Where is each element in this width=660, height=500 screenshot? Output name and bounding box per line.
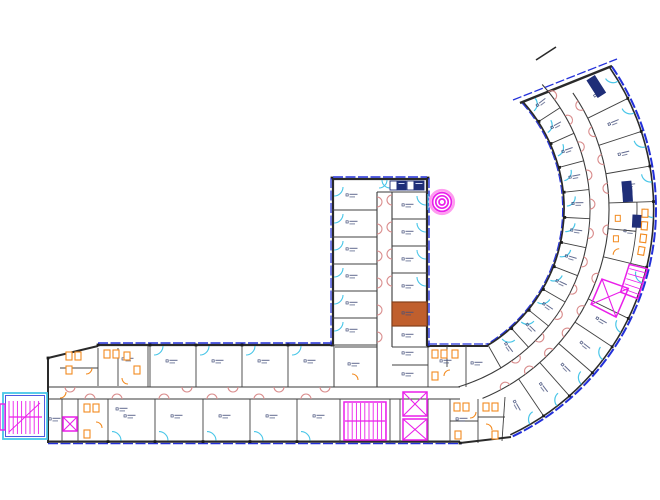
room-label-mark: [350, 223, 356, 224]
room-partition: [553, 266, 577, 275]
door-arc-corridor: [377, 305, 382, 315]
tip-tick: [536, 47, 556, 60]
column-marker: [249, 440, 252, 443]
toilet-fixture: [483, 403, 489, 411]
room-label-mark: [262, 362, 268, 363]
room-partition: [559, 161, 584, 168]
room-label-mark: [612, 122, 617, 125]
floorplan-viewport: [0, 0, 660, 500]
room-label: [346, 248, 358, 252]
room-label-mark: [170, 362, 176, 363]
room-label-mark: [219, 415, 221, 417]
toilet-fixture: [66, 366, 72, 374]
room-label-mark: [350, 248, 358, 249]
toilet-fixture: [463, 403, 469, 411]
door-arc-corridor: [377, 224, 382, 234]
room-label: [402, 204, 414, 208]
room-label: [166, 360, 178, 364]
door-arc-exterior: [565, 223, 575, 233]
room-label: [402, 352, 414, 356]
room-label-mark: [621, 151, 629, 154]
room-label-mark: [402, 352, 404, 354]
room-label-mark: [266, 415, 268, 417]
room-label: [346, 329, 358, 333]
door-arc-corridor: [274, 387, 284, 392]
room-label: [402, 285, 414, 289]
closet-tag-group: [587, 76, 605, 98]
room-label-mark: [317, 415, 325, 416]
room-label-mark: [406, 206, 412, 207]
exterior-wall-outer: [510, 68, 653, 435]
closet-tag-text: [399, 183, 405, 184]
toilet-fixture: [642, 209, 648, 217]
door-arc-orange: [96, 422, 102, 428]
door-swing: [565, 223, 575, 233]
stairwell-west[interactable]: [3, 393, 47, 439]
room-label: [471, 362, 483, 366]
spiral-annotation[interactable]: [436, 196, 448, 208]
room-label-mark: [270, 415, 278, 416]
door-arc-exterior: [417, 196, 426, 205]
door-arc-exterior: [246, 346, 255, 355]
room-label: [618, 151, 630, 157]
toilet-fixture: [75, 352, 81, 360]
toilet-fixture: [492, 431, 498, 439]
door-arc-corridor: [207, 394, 217, 399]
door-arc-exterior: [334, 322, 343, 331]
room-label-mark: [212, 360, 214, 362]
toilet-fixture: [93, 404, 99, 412]
toilet-fixture: [84, 430, 90, 438]
door-arc-exterior: [112, 432, 121, 441]
room-label-mark: [350, 196, 356, 197]
door-arc-exterior: [595, 347, 608, 360]
door-arc-exterior: [502, 333, 515, 346]
room-label-mark: [406, 354, 412, 355]
column-marker: [202, 440, 205, 443]
room-label-mark: [608, 123, 611, 126]
toilet-fixture: [66, 352, 72, 360]
room-label-mark: [350, 302, 358, 303]
column-marker: [538, 120, 541, 123]
room-label: [346, 221, 358, 225]
corridor-wall: [458, 85, 590, 387]
room-label-mark: [406, 258, 414, 259]
room-label-mark: [456, 418, 458, 420]
room-partition: [609, 202, 654, 203]
room-label: [116, 408, 128, 412]
closet-tag: [587, 76, 605, 98]
room-label-mark: [406, 352, 414, 353]
room-label-mark: [175, 415, 183, 416]
room-label-mark: [406, 314, 412, 315]
door-arc-orange: [470, 412, 476, 418]
room-label-mark: [569, 256, 577, 259]
door-arc-corridor: [301, 394, 311, 399]
room-partition: [543, 289, 566, 302]
room-label-mark: [346, 275, 348, 277]
door-arc-exterior: [642, 173, 652, 183]
room-label-mark: [566, 150, 572, 153]
door-arc-exterior: [334, 295, 343, 304]
door-swing: [575, 372, 588, 385]
room-label-mark: [406, 233, 412, 234]
door-arc-corridor: [377, 197, 382, 207]
room-label-mark: [574, 232, 580, 234]
closet-tag-group: [632, 215, 641, 227]
room-label-mark: [352, 365, 358, 366]
room-label-mark: [262, 360, 270, 361]
door-arc-corridor: [387, 276, 392, 286]
door-arc-corridor: [85, 394, 95, 399]
room-label-mark: [575, 202, 583, 203]
column-marker: [154, 440, 157, 443]
room-label-mark: [598, 321, 603, 325]
toilet-fixture: [641, 222, 648, 230]
room-label-mark: [49, 418, 51, 420]
floorplan-canvas[interactable]: [0, 0, 660, 500]
door-swing: [543, 120, 555, 132]
room-label-mark: [402, 334, 404, 336]
room-partition: [511, 328, 528, 347]
room-label: [212, 360, 224, 364]
toilet-fixture: [134, 366, 140, 374]
room-label-mark: [402, 373, 404, 375]
room-label-mark: [317, 417, 323, 418]
room-label-mark: [440, 360, 442, 362]
room-label: [402, 231, 414, 235]
closet-tag-group: [623, 188, 633, 202]
room-label-mark: [350, 277, 356, 278]
room-label-mark: [568, 258, 574, 261]
room-label: [219, 415, 231, 419]
room-label: [440, 360, 452, 364]
room-label: [402, 258, 414, 262]
door-swing: [642, 173, 652, 183]
room-label-mark: [53, 418, 61, 419]
column-marker: [568, 395, 571, 398]
room-label-mark: [406, 231, 414, 232]
wall: [488, 345, 501, 368]
room-label-mark: [475, 364, 481, 365]
stair-tread: [629, 269, 645, 273]
door-arc-corridor: [387, 222, 392, 232]
room-label-mark: [350, 329, 358, 330]
room-label-mark: [346, 194, 348, 196]
door-arc-exterior: [254, 432, 263, 441]
room-label: [560, 363, 571, 374]
room-label-mark: [120, 410, 126, 411]
door-arc-exterior: [200, 346, 209, 355]
column-marker: [560, 241, 563, 244]
room-label-mark: [622, 154, 628, 156]
room-label-mark: [308, 360, 316, 361]
door-swing: [606, 74, 618, 86]
spiral-annotation-halo[interactable]: [430, 190, 454, 214]
door-arc-corridor: [377, 278, 382, 288]
door-swing: [555, 144, 567, 156]
room-label: [304, 360, 316, 364]
room-label-mark: [406, 287, 412, 288]
room-label-mark: [580, 341, 583, 344]
room-partition: [550, 133, 574, 144]
room-label-mark: [618, 153, 621, 156]
door-arc-exterior: [417, 223, 426, 232]
door-arc-exterior: [417, 250, 426, 259]
door-arc-corridor: [112, 394, 122, 399]
room-label-mark: [402, 285, 404, 287]
column-marker: [149, 344, 152, 347]
room-label-mark: [406, 260, 412, 261]
room-label-mark: [475, 362, 483, 363]
room-label-mark: [406, 204, 414, 205]
column-marker: [459, 442, 462, 445]
door-arc-exterior: [562, 170, 573, 181]
column-marker: [611, 345, 614, 348]
room-label-mark: [444, 360, 452, 361]
room-label-mark: [460, 418, 468, 419]
door-arc-corridor: [387, 195, 392, 205]
room-label-mark: [505, 342, 508, 345]
room-label: [572, 202, 584, 206]
room-label-mark: [402, 204, 404, 206]
room-label-mark: [350, 221, 358, 222]
toilet-fixture: [113, 350, 119, 358]
room-label-mark: [627, 232, 633, 234]
room-label-mark: [171, 415, 173, 417]
closet-tag: [390, 181, 397, 190]
closet-tag-text: [416, 183, 423, 184]
column-marker: [591, 371, 594, 374]
toilet-fixture: [84, 404, 90, 412]
door-arc-corridor: [182, 387, 192, 392]
door-arc-exterior: [334, 241, 343, 250]
room-label-mark: [124, 415, 126, 417]
room-label-mark: [514, 404, 518, 409]
room-label-mark: [120, 408, 128, 409]
room-label-mark: [308, 362, 314, 363]
room-partition: [606, 166, 650, 174]
door-swing: [502, 333, 515, 346]
column-marker: [563, 216, 566, 219]
room-label-mark: [402, 258, 404, 260]
room-label-mark: [346, 221, 348, 223]
door-arc-exterior: [334, 187, 343, 196]
room-partition: [603, 257, 646, 267]
column-marker: [195, 344, 198, 347]
column-marker: [563, 191, 566, 194]
spiral-annotation[interactable]: [439, 199, 445, 205]
room-label-mark: [596, 317, 599, 320]
door-arc-orange: [122, 378, 128, 384]
toilet-fixture: [104, 350, 110, 358]
room-label-mark: [554, 121, 562, 126]
room-partition: [564, 217, 590, 218]
door-arc-exterior: [207, 432, 216, 441]
room-label-mark: [216, 362, 222, 363]
room-label-mark: [444, 362, 450, 363]
column-marker: [550, 142, 553, 145]
closet-tag: [407, 181, 414, 190]
room-label-mark: [170, 360, 178, 361]
door-arc-exterior: [543, 120, 555, 132]
door-arc-corridor: [377, 251, 382, 261]
room-label-mark: [166, 360, 168, 362]
door-arc-exterior: [551, 393, 564, 406]
door-arc-exterior: [154, 346, 163, 355]
door-swing: [562, 170, 573, 181]
room-label-mark: [406, 334, 414, 335]
room-label-mark: [128, 415, 136, 416]
door-arc-corridor: [377, 332, 382, 342]
toilet-fixture: [432, 350, 438, 358]
column-marker: [97, 344, 100, 347]
room-label: [402, 373, 414, 377]
column-marker: [626, 97, 629, 100]
room-label: [402, 334, 414, 338]
door-arc-orange: [613, 249, 619, 255]
column-marker: [107, 440, 110, 443]
door-swing: [551, 393, 564, 406]
room-label-mark: [223, 415, 231, 416]
toilet-fixture: [492, 403, 498, 411]
room-label-mark: [406, 373, 414, 374]
door-arc-corridor: [320, 387, 330, 392]
room-label-mark: [116, 408, 118, 410]
door-arc-exterior: [606, 74, 618, 86]
room-label-mark: [575, 205, 581, 206]
sink-fixture: [613, 236, 618, 242]
door-arc-exterior: [417, 277, 426, 286]
room-label-mark: [529, 325, 535, 331]
room-label-mark: [561, 363, 564, 366]
room-partition: [538, 108, 560, 122]
room-partition: [561, 242, 586, 247]
door-arc-orange: [486, 424, 492, 430]
closet-tag: [632, 215, 641, 227]
sink-fixture: [615, 215, 620, 221]
room-label-mark: [402, 231, 404, 233]
column-marker: [542, 288, 545, 291]
room-label: [512, 400, 521, 412]
door-swing: [525, 412, 537, 424]
highlighted-room-orange[interactable]: [392, 302, 427, 326]
door-arc-exterior: [575, 372, 588, 385]
room-label-mark: [406, 285, 414, 286]
room-label-mark: [350, 331, 356, 332]
door-arc-exterior: [334, 268, 343, 277]
door-arc-corridor: [159, 394, 169, 399]
column-marker: [542, 415, 545, 418]
closet-tag: [397, 181, 406, 190]
room-label-mark: [313, 415, 315, 417]
closet-tag: [623, 188, 633, 202]
room-label-mark: [175, 417, 181, 418]
room-label-mark: [270, 417, 276, 418]
door-arc-corridor: [254, 394, 264, 399]
column-marker: [287, 344, 290, 347]
room-partition: [588, 98, 628, 118]
column-marker: [553, 265, 556, 268]
toilet-fixture: [452, 350, 458, 358]
room-label: [258, 360, 270, 364]
toilet-fixture: [640, 234, 647, 243]
column-marker: [528, 309, 531, 312]
room-label: [595, 317, 607, 326]
room-label-mark: [350, 275, 358, 276]
room-partition: [563, 190, 589, 193]
column-marker: [558, 166, 561, 169]
door-arc-exterior: [525, 412, 537, 424]
room-label-mark: [574, 229, 582, 231]
door-arc-exterior: [301, 432, 310, 441]
column-marker: [640, 130, 643, 133]
room-label-mark: [558, 283, 563, 286]
room-label-mark: [258, 360, 260, 362]
room-label-mark: [572, 174, 580, 176]
toilet-fixture: [455, 431, 461, 439]
room-label-mark: [352, 363, 360, 364]
room-label: [503, 342, 513, 353]
room-label-mark: [611, 119, 619, 123]
column-marker: [241, 344, 244, 347]
toilet-fixture: [454, 403, 460, 411]
column-marker: [510, 327, 513, 330]
room-label-mark: [346, 302, 348, 304]
room-label: [538, 382, 548, 393]
room-label: [266, 415, 278, 419]
door-arc-corridor: [65, 387, 75, 392]
wall: [460, 437, 511, 443]
room-label: [346, 275, 358, 279]
door-arc-corridor: [228, 387, 238, 392]
wall: [48, 346, 98, 358]
door-arc-exterior: [292, 346, 301, 355]
door-arc-exterior: [555, 144, 567, 156]
column-marker: [47, 357, 50, 360]
door-arc-orange: [444, 370, 450, 376]
room-label: [171, 415, 183, 419]
room-label: [348, 363, 360, 367]
door-arc-orange: [86, 368, 92, 374]
room-label-mark: [564, 365, 570, 371]
room-label-mark: [346, 329, 348, 331]
toilet-fixture: [441, 350, 447, 358]
room-label-mark: [350, 194, 358, 195]
door-swing: [595, 347, 608, 360]
room-label-mark: [348, 363, 350, 365]
door-arc-corridor: [387, 249, 392, 259]
room-label-mark: [565, 147, 573, 151]
room-label: [49, 418, 61, 422]
room-label-mark: [346, 248, 348, 250]
column-marker: [652, 200, 655, 203]
restroom-wall: [608, 229, 636, 232]
room-label-mark: [471, 362, 473, 364]
toilet-fixture: [638, 246, 645, 255]
column-marker: [627, 317, 630, 320]
door-arc-orange: [352, 374, 358, 380]
toilet-fixture: [124, 352, 130, 360]
room-label-mark: [406, 312, 414, 313]
column-marker: [648, 165, 651, 168]
closet-tag: [414, 181, 424, 190]
room-label: [608, 119, 620, 127]
door-arc-exterior: [334, 214, 343, 223]
room-label: [313, 415, 325, 419]
restroom-wall: [631, 202, 637, 263]
room-label-mark: [53, 420, 59, 421]
